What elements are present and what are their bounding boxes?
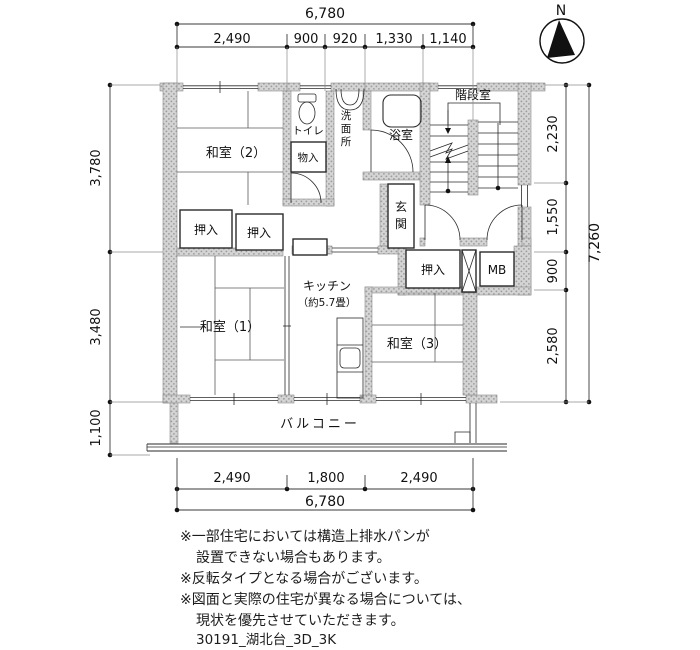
dim-right-seg0: 2,230: [546, 115, 561, 152]
label-toilet: トイレ: [292, 125, 324, 137]
dim-top-seg4: 1,140: [429, 32, 466, 47]
label-balcony: バルコニー: [280, 417, 360, 432]
label-closet-a: 押入: [194, 223, 218, 237]
toilet-icon: [298, 94, 316, 124]
washbasin-icon: [336, 89, 364, 110]
note-line-2: 設置できない場合もあります。: [196, 550, 391, 566]
dim-top-total: 6,780: [305, 6, 345, 22]
label-entrance-2: 関: [395, 217, 407, 231]
note-line-3: ※反転タイプとなる場合がございます。: [180, 570, 428, 587]
dimensions-bottom: 2,490 1,800 2,490 6,780: [175, 458, 476, 512]
label-stairwell: 階段室: [455, 87, 491, 102]
compass-n-label: N: [556, 3, 566, 19]
label-meter-box: MB: [488, 263, 507, 277]
kitchen-counter: [337, 318, 363, 398]
label-bath: 浴室: [389, 127, 413, 142]
note-line-4: ※図面と実際の住宅が異なる場合については、: [180, 592, 471, 608]
notes-block: ※一部住宅においては構造上排水パンが 設置できない場合もあります。 ※反転タイプ…: [180, 529, 471, 648]
dim-right-total: 7,260: [587, 223, 603, 263]
dim-bottom-seg0: 2,490: [213, 471, 250, 486]
label-washitsu3: 和室（3）: [387, 336, 447, 352]
label-washroom-2: 面: [341, 123, 352, 135]
dim-top-seg2: 920: [333, 32, 358, 47]
balcony-step: [455, 432, 470, 443]
stair-arrow-down: [445, 128, 451, 134]
dim-bottom-total: 6,780: [305, 494, 345, 510]
drawing-id: 30191_湖北台_3D_3K: [196, 632, 337, 648]
sliding-partitions: [283, 248, 378, 395]
dim-right-seg3: 2,580: [546, 327, 561, 364]
bathtub-icon: [383, 95, 421, 127]
label-kitchen-size: （約5.7畳）: [298, 296, 357, 309]
label-washitsu2: 和室（2）: [206, 145, 266, 161]
label-closet-b: 押入: [247, 226, 271, 240]
dim-left-seg1: 3,480: [89, 308, 104, 345]
dim-left-seg2: 1,100: [89, 409, 104, 446]
label-entrance-1: 玄: [395, 199, 407, 214]
dim-right-seg2: 900: [546, 259, 561, 284]
dim-top-seg1: 900: [294, 32, 319, 47]
fixtures-boxes: [180, 142, 514, 292]
label-kitchen: キッチン: [303, 279, 351, 293]
note-line-5: 現状を優先させていただきます。: [196, 613, 405, 629]
dimensions-right: 2,230 1,550 900 2,580 7,260: [500, 83, 603, 405]
north-arrow: [547, 20, 575, 58]
dim-top-seg0: 2,490: [213, 32, 250, 47]
dim-left-seg0: 3,780: [89, 149, 104, 186]
note-line-1: ※一部住宅においては構造上排水パンが: [180, 529, 430, 545]
north-compass: N: [540, 3, 584, 63]
label-storage: 物入: [298, 151, 319, 164]
label-washitsu1: 和室（1）: [200, 319, 260, 335]
dim-bottom-seg2: 2,490: [400, 471, 437, 486]
label-closet-c: 押入: [421, 263, 445, 277]
stair-break-line: [430, 143, 468, 153]
floor-plan-page: N 6,780 2,490 900 920 1,330 1,140 3,780 …: [0, 0, 700, 650]
dim-bottom-seg1: 1,800: [307, 471, 344, 486]
dimensions-left: 3,780 3,480 1,100: [89, 83, 168, 458]
label-washroom-3: 所: [341, 136, 352, 148]
dim-top-seg3: 1,330: [375, 32, 412, 47]
label-washroom-1: 洗: [341, 110, 352, 122]
stair-arrow-up: [445, 156, 451, 163]
dim-right-seg1: 1,550: [546, 198, 561, 235]
floor-plan-drawing: N 6,780 2,490 900 920 1,330 1,140 3,780 …: [0, 0, 700, 650]
